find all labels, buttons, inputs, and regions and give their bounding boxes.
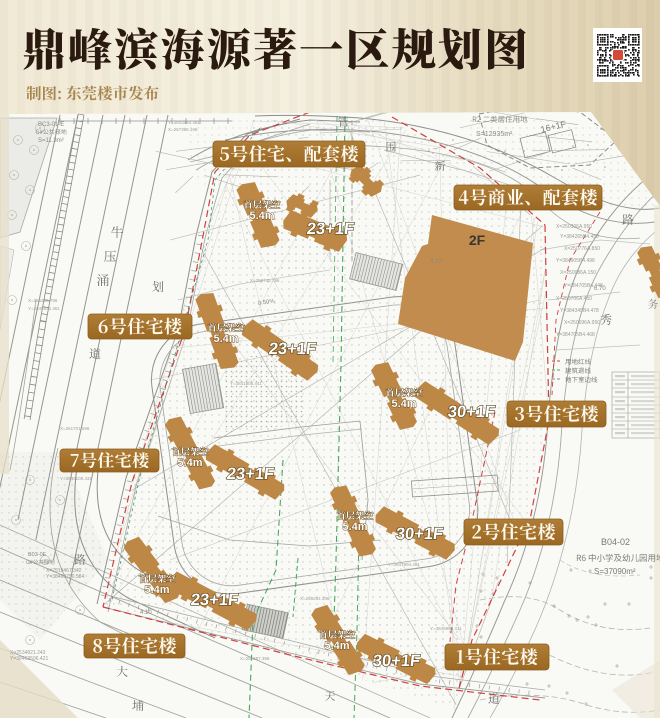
svg-text:X=250706A.450: X=250706A.450 bbox=[556, 296, 592, 302]
svg-text:23+1F: 23+1F bbox=[226, 464, 275, 483]
svg-text:5.4m: 5.4m bbox=[144, 584, 169, 596]
svg-text:Y=3845932.461: Y=3845932.461 bbox=[28, 306, 60, 311]
svg-text:Y=384905B4.498: Y=384905B4.498 bbox=[556, 258, 595, 264]
svg-text:S=12935m²: S=12935m² bbox=[476, 131, 513, 138]
svg-text:4.10: 4.10 bbox=[140, 610, 152, 616]
svg-text:B03-0E: B03-0E bbox=[28, 552, 47, 558]
svg-text:30+1F: 30+1F bbox=[395, 524, 444, 543]
svg-text:X=250696A.950: X=250696A.950 bbox=[564, 320, 600, 326]
svg-text:5.4m: 5.4m bbox=[324, 640, 349, 652]
svg-text:5.4m: 5.4m bbox=[177, 457, 202, 469]
svg-text:23+1F: 23+1F bbox=[268, 339, 317, 358]
svg-text:5.4m: 5.4m bbox=[342, 521, 367, 533]
svg-text:S=37090m²: S=37090m² bbox=[594, 567, 636, 576]
svg-text:Y=38463596.421: Y=38463596.421 bbox=[10, 656, 48, 662]
svg-text:X=258284.396: X=258284.396 bbox=[300, 596, 330, 601]
svg-text:5.4m: 5.4m bbox=[249, 210, 274, 222]
svg-text:Y=3841508.441: Y=3841508.441 bbox=[230, 381, 262, 386]
svg-text:Y=3847994.461: Y=3847994.461 bbox=[388, 562, 420, 567]
svg-text:X=258745.796: X=258745.796 bbox=[250, 278, 280, 283]
svg-text:30+1F: 30+1F bbox=[447, 402, 496, 421]
svg-text:BC3-01-E: BC3-01-E bbox=[38, 122, 64, 128]
svg-text:23+1F: 23+1F bbox=[306, 219, 355, 238]
svg-text:X=257388.196: X=257388.196 bbox=[168, 127, 198, 132]
svg-text:5.4m: 5.4m bbox=[391, 398, 416, 410]
svg-text:S=11.3m²: S=11.3m² bbox=[38, 138, 64, 144]
svg-text:Y=384705B4.468: Y=384705B4.468 bbox=[556, 332, 595, 338]
svg-text:B04-02: B04-02 bbox=[601, 537, 630, 547]
svg-text:Y=384265B4.458: Y=384265B4.458 bbox=[560, 234, 599, 240]
svg-text:30+1F: 30+1F bbox=[372, 651, 421, 670]
svg-text:X=251701.596: X=251701.596 bbox=[60, 426, 90, 431]
svg-text:5.4m: 5.4m bbox=[213, 333, 238, 345]
svg-text:Y=384345B4.478: Y=384345B4.478 bbox=[560, 308, 599, 314]
svg-text:Y=38460750.584: Y=38460750.584 bbox=[46, 574, 84, 580]
svg-text:Y=3849108.431: Y=3849108.431 bbox=[60, 476, 92, 481]
svg-text:X=250306A.950: X=250306A.950 bbox=[556, 224, 592, 230]
svg-text:6.70: 6.70 bbox=[594, 286, 606, 292]
svg-text:X=250086A.150: X=250086A.150 bbox=[560, 270, 596, 276]
svg-text:2F: 2F bbox=[469, 232, 486, 248]
svg-text:X=250776A.850: X=250776A.850 bbox=[564, 246, 600, 252]
svg-text:4.20: 4.20 bbox=[430, 259, 442, 265]
svg-text:X=255226.796: X=255226.796 bbox=[28, 298, 58, 303]
svg-text:23+1F: 23+1F bbox=[190, 590, 239, 609]
svg-text:Y=3846988.411: Y=3846988.411 bbox=[430, 626, 462, 631]
svg-text:Y=3843484.481: Y=3843484.481 bbox=[168, 120, 200, 125]
svg-text:X=251587.396: X=251587.396 bbox=[240, 656, 270, 661]
